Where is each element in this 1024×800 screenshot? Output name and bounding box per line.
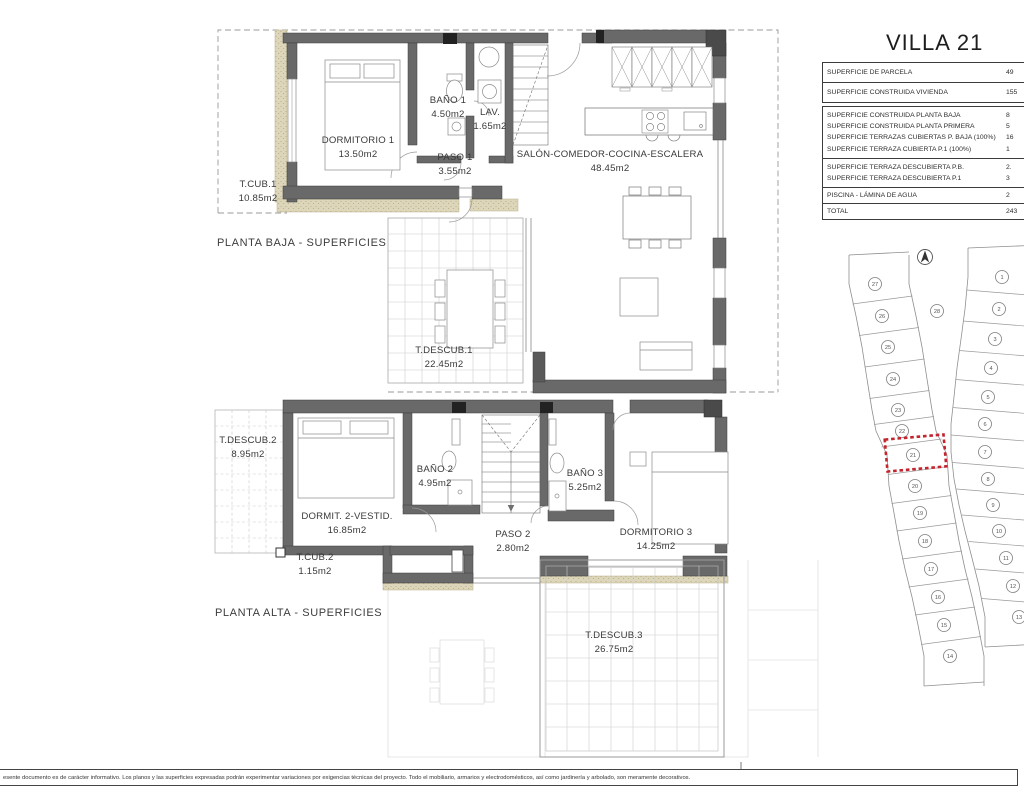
table-section-piscina: PISCINA - LÁMINA DE AGUA2 — [822, 187, 1024, 204]
room-label-dormitorio-3: DORMITORIO 314.25m2 — [620, 528, 693, 553]
svg-text:12: 12 — [1010, 584, 1016, 590]
svg-text:23: 23 — [895, 408, 901, 414]
table-row: SUPERFICIE TERRAZA DESCUBIERTA P.13 — [823, 173, 1024, 184]
svg-text:9: 9 — [991, 503, 994, 509]
caption-planta-baja: PLANTA BAJA - SUPERFICIES — [217, 237, 386, 249]
svg-text:8: 8 — [986, 477, 989, 483]
north-arrow-icon — [918, 250, 933, 265]
room-label-dormit-2: DORMIT. 2-VESTID.16.85m2 — [301, 512, 392, 537]
planta-alta-drawing — [215, 400, 818, 757]
room-label-tdescub-3: T.DESCUB.326.75m2 — [585, 631, 642, 656]
room-label-bano-2: BAÑO 24.95m2 — [417, 465, 453, 490]
svg-text:18: 18 — [922, 539, 928, 545]
room-label-lav: LAV.1.65m2 — [473, 108, 506, 133]
table-section-construida: SUPERFICIE CONSTRUIDA PLANTA BAJA8SUPERF… — [822, 106, 1024, 159]
room-label-tcub-1: T.CUB.110.85m2 — [239, 180, 278, 205]
site-plan-drawing: 2726252423222120191817161514123456789101… — [849, 245, 1024, 686]
svg-text:27: 27 — [872, 282, 878, 288]
table-row: SUPERFICIE CONSTRUIDA VIVIENDA155 — [823, 82, 1024, 102]
room-label-dormitorio-1: DORMITORIO 113.50m2 — [322, 136, 395, 161]
planta-baja-drawing — [218, 30, 778, 393]
table-row: SUPERFICIE TERRAZAS CUBIERTAS P. BAJA (1… — [823, 132, 1024, 143]
svg-text:15: 15 — [941, 623, 947, 629]
table-row: SUPERFICIE CONSTRUIDA PLANTA PRIMERA5 — [823, 121, 1024, 132]
room-label-salon: SALÓN-COMEDOR-COCINA-ESCALERA48.45m2 — [517, 150, 704, 175]
area-table: SUPERFICIE DE PARCELA49SUPERFICIE CONSTR… — [822, 62, 1024, 220]
svg-text:13: 13 — [1016, 615, 1022, 621]
table-row: SUPERFICIE DE PARCELA49 — [823, 63, 1024, 82]
svg-text:25: 25 — [885, 345, 891, 351]
table-row: SUPERFICIE TERRAZA CUBIERTA P.1 (100%)1 — [823, 144, 1024, 155]
table-row: SUPERFICIE CONSTRUIDA PLANTA BAJA8 — [823, 110, 1024, 121]
room-label-tcub-2: T.CUB.21.15m2 — [296, 553, 333, 578]
svg-text:6: 6 — [983, 422, 986, 428]
sheet-title: VILLA 21 — [886, 30, 1024, 56]
room-label-paso-1: PASO 13.55m2 — [437, 153, 472, 178]
room-label-tdescub-1: T.DESCUB.122.45m2 — [415, 346, 472, 371]
room-label-bano-1: BAÑO 14.50m2 — [430, 96, 466, 121]
svg-text:10: 10 — [996, 529, 1002, 535]
table-section-total: TOTAL243 — [822, 203, 1024, 220]
caption-planta-alta: PLANTA ALTA - SUPERFICIES — [215, 607, 382, 619]
disclaimer-strip: esente documento es de carácter informat… — [0, 769, 1018, 786]
room-label-tdescub-2: T.DESCUB.28.95m2 — [219, 436, 276, 461]
table-section-main: SUPERFICIE DE PARCELA49SUPERFICIE CONSTR… — [822, 62, 1024, 103]
svg-text:22: 22 — [899, 429, 905, 435]
plan-sheet: { "title": "VILLA 21", "table": { "rows_… — [0, 0, 1024, 800]
svg-text:5: 5 — [986, 395, 989, 401]
svg-text:20: 20 — [912, 484, 918, 490]
svg-text:26: 26 — [879, 314, 885, 320]
table-row: PISCINA - LÁMINA DE AGUA2 — [823, 188, 1024, 203]
svg-text:1: 1 — [1000, 275, 1003, 281]
svg-text:14: 14 — [947, 654, 953, 660]
svg-text:16: 16 — [935, 595, 941, 601]
svg-text:4: 4 — [989, 366, 992, 372]
svg-text:3: 3 — [993, 337, 996, 343]
disclaimer-text: esente documento es de carácter informat… — [3, 775, 690, 781]
svg-text:2: 2 — [997, 307, 1000, 313]
svg-text:21: 21 — [910, 453, 916, 459]
svg-text:28: 28 — [934, 309, 940, 315]
table-section-descubierta: SUPERFICIE TERRAZA DESCUBIERTA P.B.2.SUP… — [822, 158, 1024, 188]
svg-text:11: 11 — [1003, 556, 1009, 562]
svg-text:17: 17 — [928, 567, 934, 573]
room-label-paso-2: PASO 22.80m2 — [495, 530, 530, 555]
svg-text:24: 24 — [890, 377, 896, 383]
svg-text:19: 19 — [917, 511, 923, 517]
svg-text:7: 7 — [983, 450, 986, 456]
table-row: TOTAL243 — [823, 204, 1024, 219]
room-label-bano-3: BAÑO 35.25m2 — [567, 469, 603, 494]
table-row: SUPERFICIE TERRAZA DESCUBIERTA P.B.2. — [823, 162, 1024, 173]
